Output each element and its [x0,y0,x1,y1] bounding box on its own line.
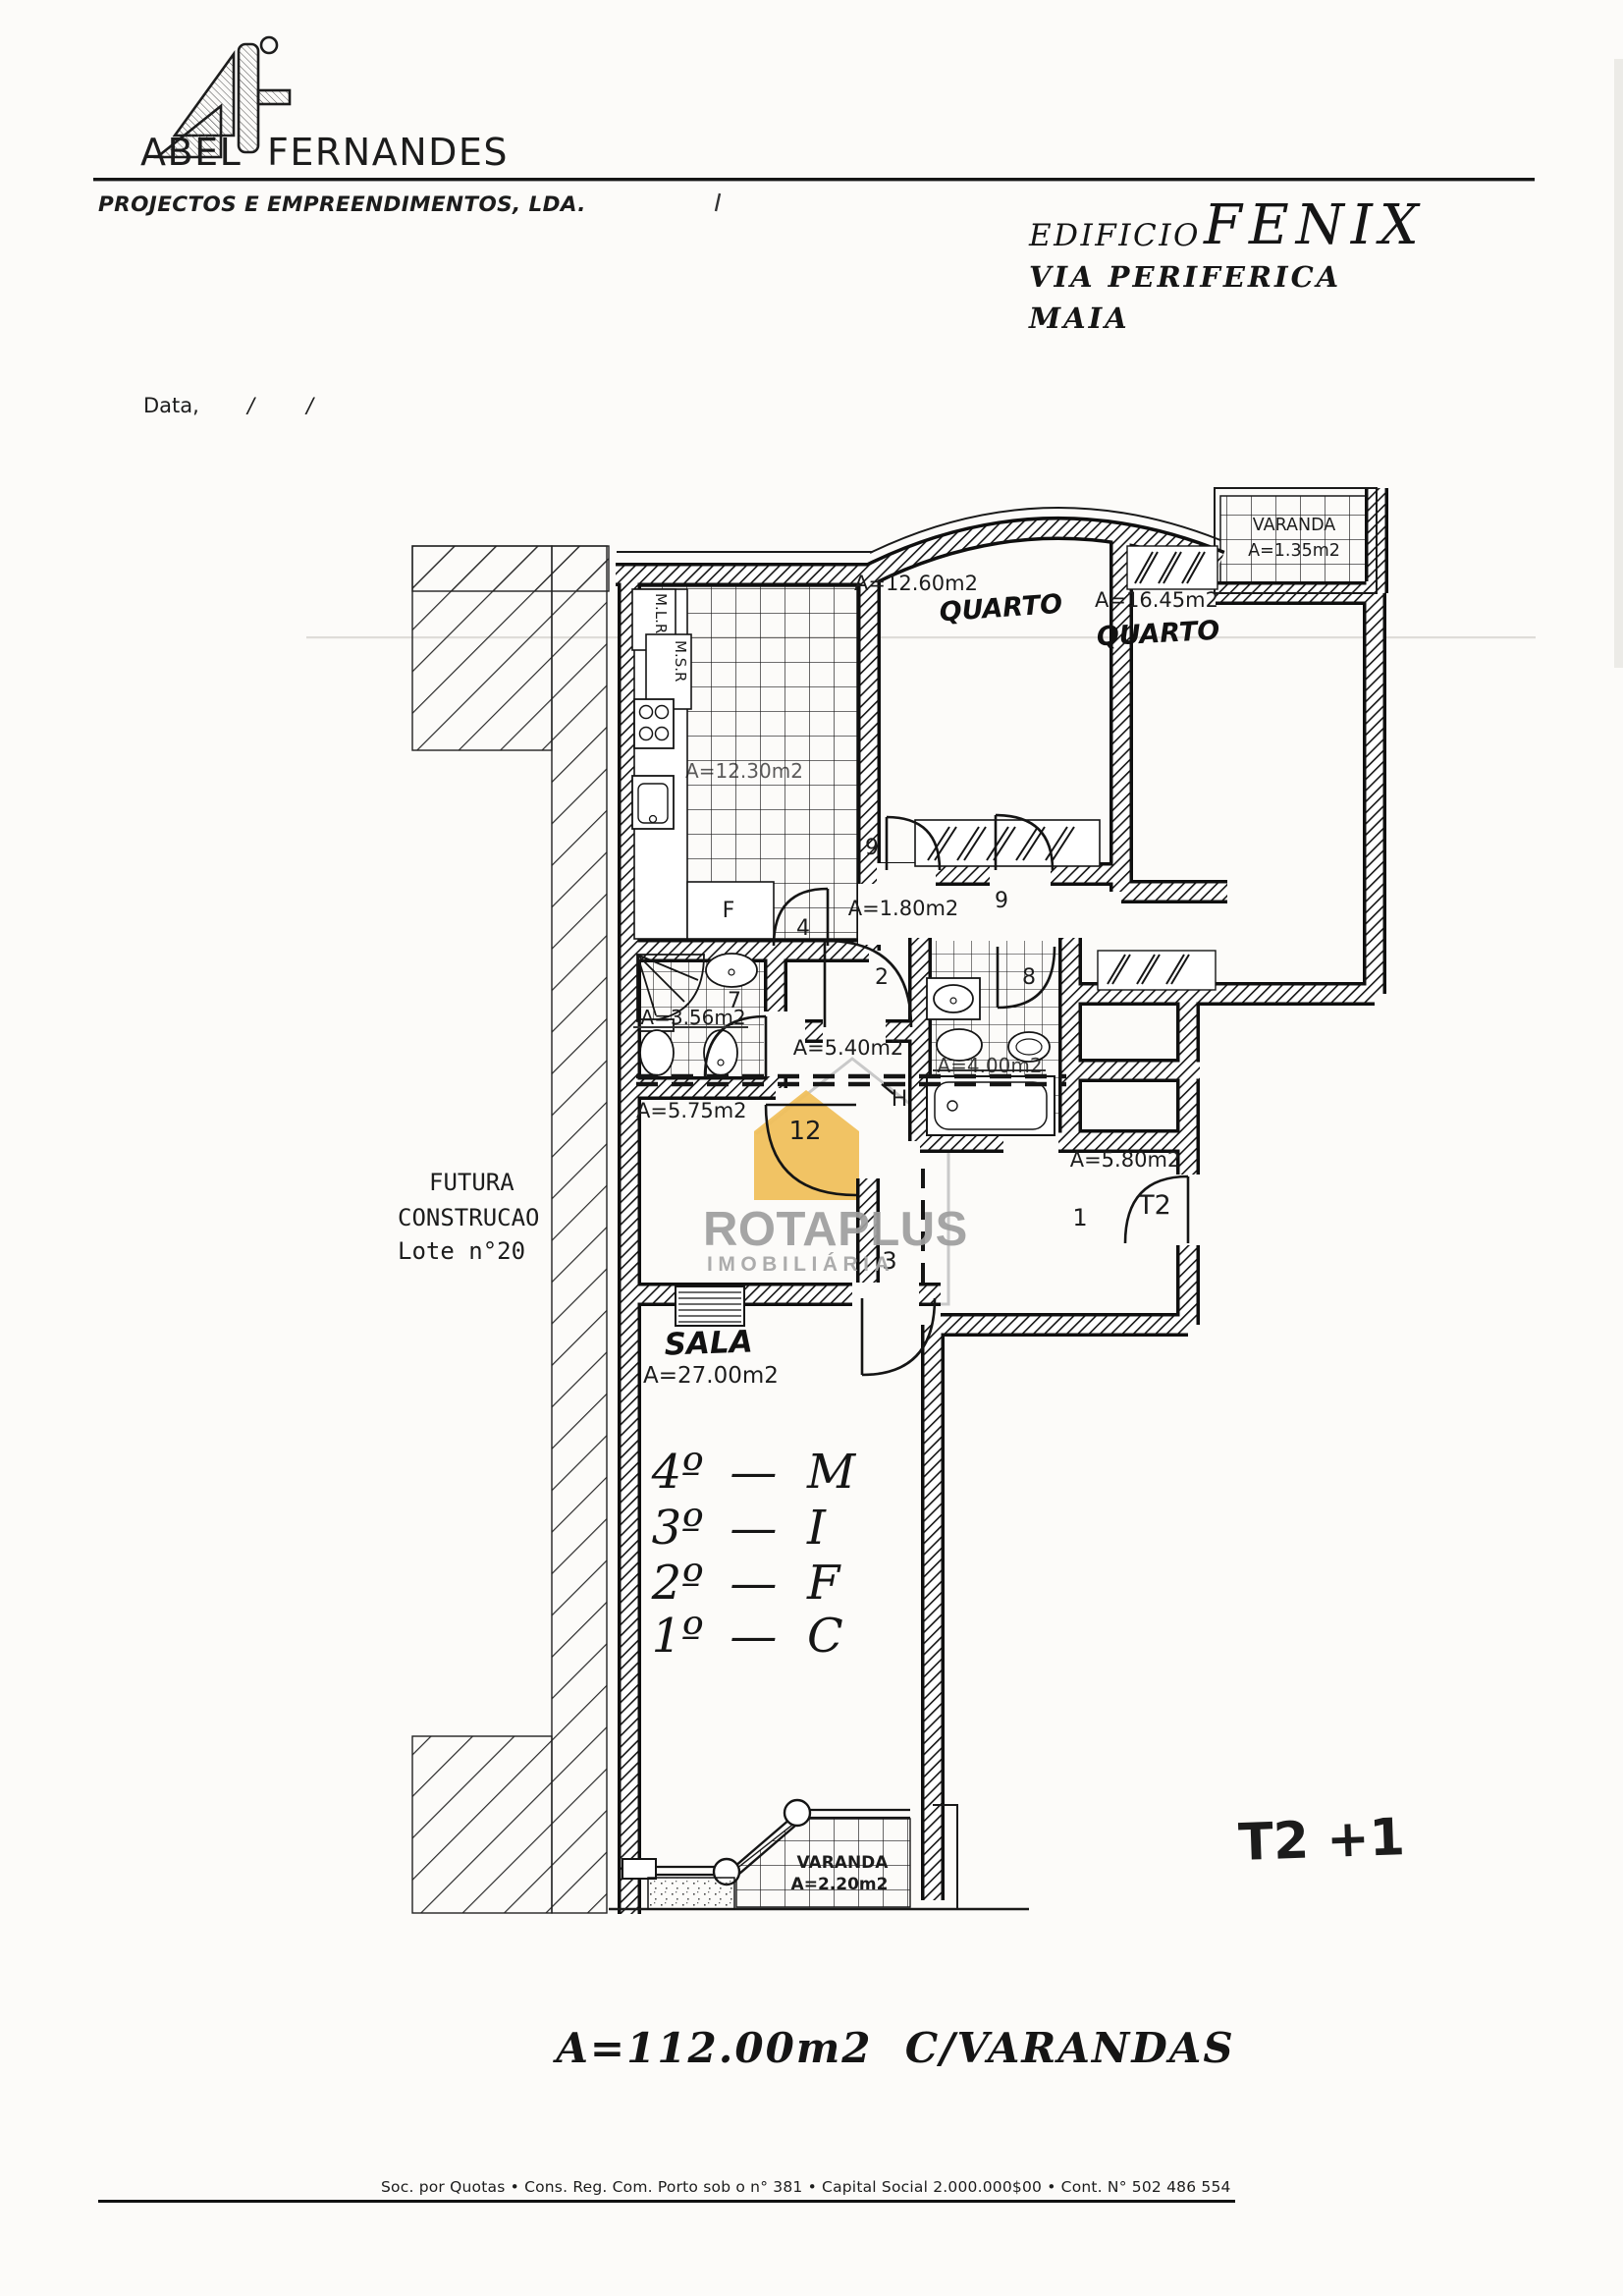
sala-area: A=27.00m2 [643,1363,779,1389]
floor-4-unit: M [806,1445,857,1500]
closet-f-label: F [723,899,735,923]
quarto2-area: A=16.45m2 [1095,588,1218,612]
company-name-last: FERNANDES [267,131,509,174]
floor-row-2: 2º — F [651,1556,841,1611]
cozinha-area: A=12.30m2 [685,759,803,783]
floor-4-level: 4º [651,1445,704,1500]
door-number-9b: 9 [995,889,1008,913]
total-area-caption: A=112.00m2 C/VARANDAS [552,2024,1234,2072]
company-name: ABEL FERNANDES [140,131,509,174]
floorplan-drawing: ABEL FERNANDES PROJECTOS E EMPREENDIMENT… [0,0,1623,2296]
hall-entrada-area: A=5.75m2 [636,1099,747,1122]
scanned-document-page: ABEL FERNANDES PROJECTOS E EMPREENDIMENT… [0,0,1623,2296]
floor-row-3: 3º — I [652,1501,827,1556]
watermark-text: ROTAPLUS IMOBILIÁRIA [703,1203,968,1276]
stove [634,699,674,748]
corredor-area: A=5.40m2 [793,1036,904,1060]
radiator-quarto2-top [1127,546,1217,589]
typology-note: T2 +1 [1237,1808,1406,1873]
washbasin-2 [927,978,980,1019]
future-line3: Lote n°20 [398,1237,525,1265]
project-title-block: EDIFICIO FENIX VIA PERIFERICA MAIA [1028,193,1426,335]
quarto2-name: QUARTO [1096,616,1220,653]
floor-row-4: 4º — M [651,1445,857,1500]
hall-interior-area: A=1.80m2 [848,897,959,920]
sala-radiator [676,1286,744,1326]
floor-3-dash: — [730,1501,777,1556]
balcony-top-tiles [1220,496,1380,584]
watermark-brand: ROTAPLUS [703,1203,968,1256]
hall-t2-area: A=5.80m2 [1070,1148,1181,1172]
label-h: H [892,1087,908,1112]
floor-unit-list: 4º — M 3º — I 2º — F 1º — C [651,1445,857,1664]
floor-4-dash: — [730,1445,777,1500]
washbasin-1 [706,954,757,987]
door-number-1: 1 [1072,1204,1087,1231]
planter-box [648,1878,734,1909]
door-number-8: 8 [1022,965,1036,990]
floor-1-unit: C [807,1609,843,1664]
scan-edge-artifact [1614,59,1623,668]
future-construction-caption: FUTURA CONSTRUCAO Lote n°20 [398,1169,540,1265]
date-line: Data, / / [143,394,315,417]
door-number-12: 12 [788,1117,821,1146]
floor-2-unit: F [806,1556,841,1611]
kitchen-sink [632,776,674,829]
logo-f-arm [258,90,290,104]
date-slash-1: / [245,394,256,417]
wardrobe-quarto1 [915,820,1100,866]
varanda-top-area: A=1.35m2 [1248,541,1340,561]
floor-1-dash: — [730,1609,777,1664]
project-building-label: EDIFICIO [1028,218,1201,253]
company-name-first: ABEL [140,131,242,174]
floor-3-unit: I [806,1501,827,1556]
closet-msr-label: M.S.R [672,640,689,682]
door-number-9a: 9 [865,836,879,860]
project-building-name: FENIX [1203,193,1426,257]
radiator-quarto2-bottom [1098,951,1216,990]
footer-rule [98,2200,1235,2203]
watermark-tagline: IMOBILIÁRIA [707,1253,894,1276]
door-label-t2: T2 [1137,1190,1171,1221]
letterhead-rule [93,178,1535,181]
date-slash-2: / [304,394,315,417]
wc2-area: A=4.00m2 [937,1054,1042,1077]
stray-pen-tick [716,193,720,211]
varanda-top-name: VARANDA [1253,516,1336,535]
future-line2: CONSTRUCAO [398,1204,540,1231]
floor-row-1: 1º — C [652,1609,843,1664]
tiled-floors [633,496,1380,1907]
floor-1-level: 1º [652,1609,704,1664]
future-line1: FUTURA [429,1169,514,1196]
date-label: Data, [143,394,199,417]
footer-legal-text: Soc. por Quotas • Cons. Reg. Com. Porto … [381,2178,1231,2196]
varanda-bottom-area: A=2.20m2 [791,1875,889,1894]
project-street: VIA PERIFERICA [1029,260,1341,294]
door-number-2: 2 [875,965,889,990]
sala-name: SALA [664,1324,753,1362]
project-city: MAIA [1028,301,1130,335]
company-subtitle: PROJECTOS E EMPREENDIMENTOS, LDA. [98,192,586,217]
door-number-7: 7 [728,989,741,1013]
quarto1-area: A=12.60m2 [854,572,978,595]
floor-2-level: 2º [651,1556,704,1611]
floor-2-dash: — [730,1556,777,1611]
floor-3-level: 3º [652,1501,704,1556]
balcony-pillar [622,1859,656,1879]
varanda-bottom-name: VARANDA [797,1853,890,1873]
door-number-4: 4 [796,916,810,941]
railing-post-1 [784,1800,810,1826]
logo-degree-mark [261,37,277,53]
closet-mlr-label: M.L.R [652,593,670,633]
